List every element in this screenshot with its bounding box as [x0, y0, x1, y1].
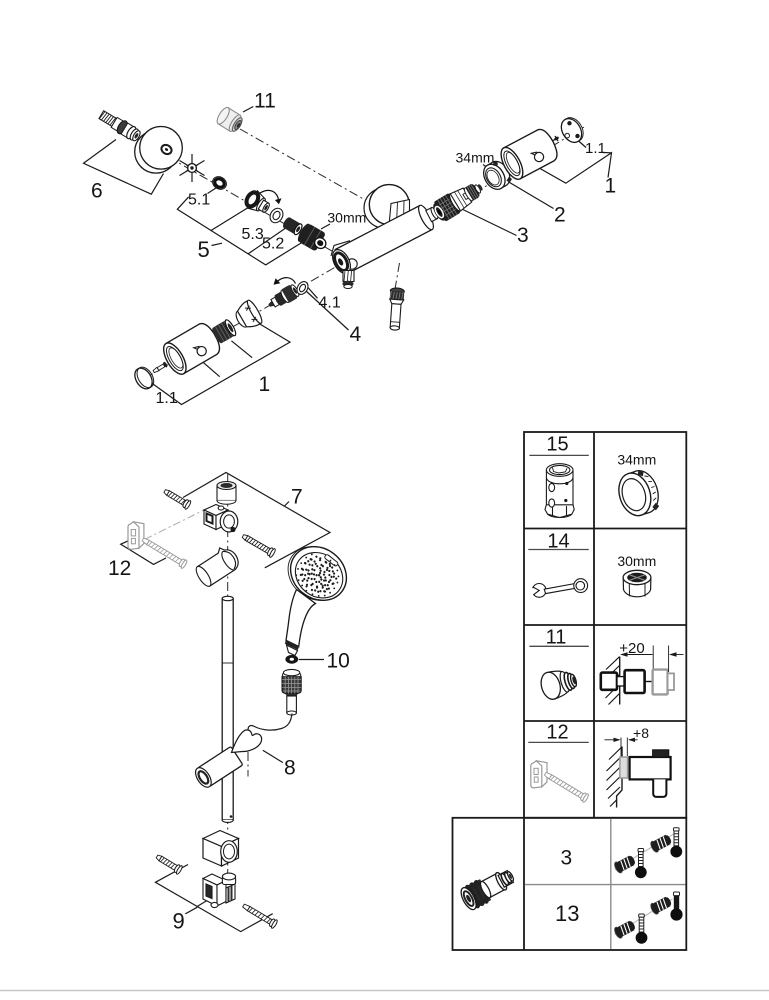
- svg-text:34mm: 34mm: [617, 452, 656, 468]
- svg-text:3: 3: [560, 846, 572, 869]
- svg-text:1.1: 1.1: [585, 140, 606, 157]
- svg-text:4.1: 4.1: [319, 295, 341, 312]
- svg-text:34mm: 34mm: [456, 150, 495, 166]
- svg-text:1: 1: [605, 175, 617, 198]
- svg-text:11: 11: [546, 627, 567, 649]
- svg-text:30mm: 30mm: [617, 553, 656, 569]
- svg-text:13: 13: [555, 901, 579, 926]
- svg-text:11: 11: [254, 90, 276, 113]
- svg-text:1.1: 1.1: [156, 390, 178, 407]
- svg-text:4: 4: [350, 323, 362, 346]
- svg-text:12: 12: [108, 557, 131, 580]
- svg-text:+8: +8: [633, 725, 649, 741]
- svg-text:5.3: 5.3: [242, 226, 264, 243]
- svg-text:5.1: 5.1: [188, 192, 210, 209]
- svg-text:15: 15: [546, 434, 568, 456]
- svg-text:5.2: 5.2: [262, 236, 284, 253]
- svg-text:12: 12: [546, 722, 568, 744]
- svg-text:7: 7: [291, 486, 303, 509]
- svg-text:8: 8: [284, 757, 296, 780]
- svg-text:30mm: 30mm: [327, 209, 366, 225]
- svg-text:3: 3: [517, 224, 529, 247]
- svg-text:6: 6: [91, 180, 103, 203]
- svg-text:10: 10: [327, 650, 350, 673]
- svg-text:2: 2: [554, 204, 566, 227]
- svg-text:1: 1: [259, 373, 271, 396]
- svg-text:5: 5: [198, 237, 210, 262]
- svg-text:9: 9: [173, 909, 185, 934]
